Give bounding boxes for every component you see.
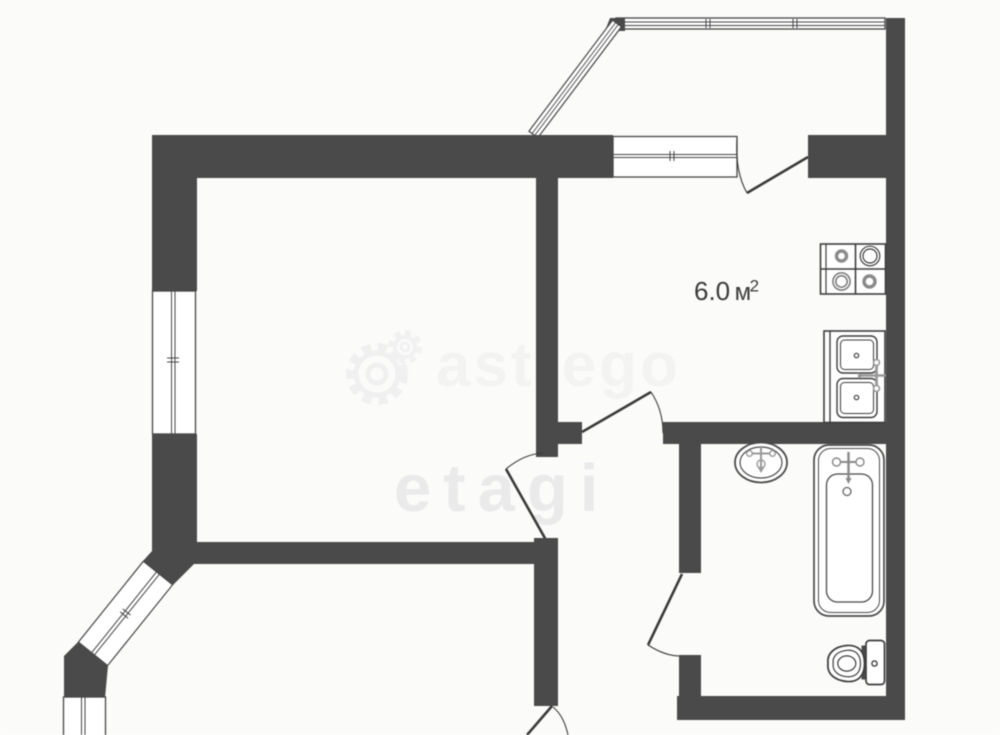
svg-text:6.0м2: 6.0м2: [694, 276, 759, 306]
svg-text:astrego: astrego: [436, 331, 681, 400]
svg-text:etagi: etagi: [394, 451, 610, 526]
